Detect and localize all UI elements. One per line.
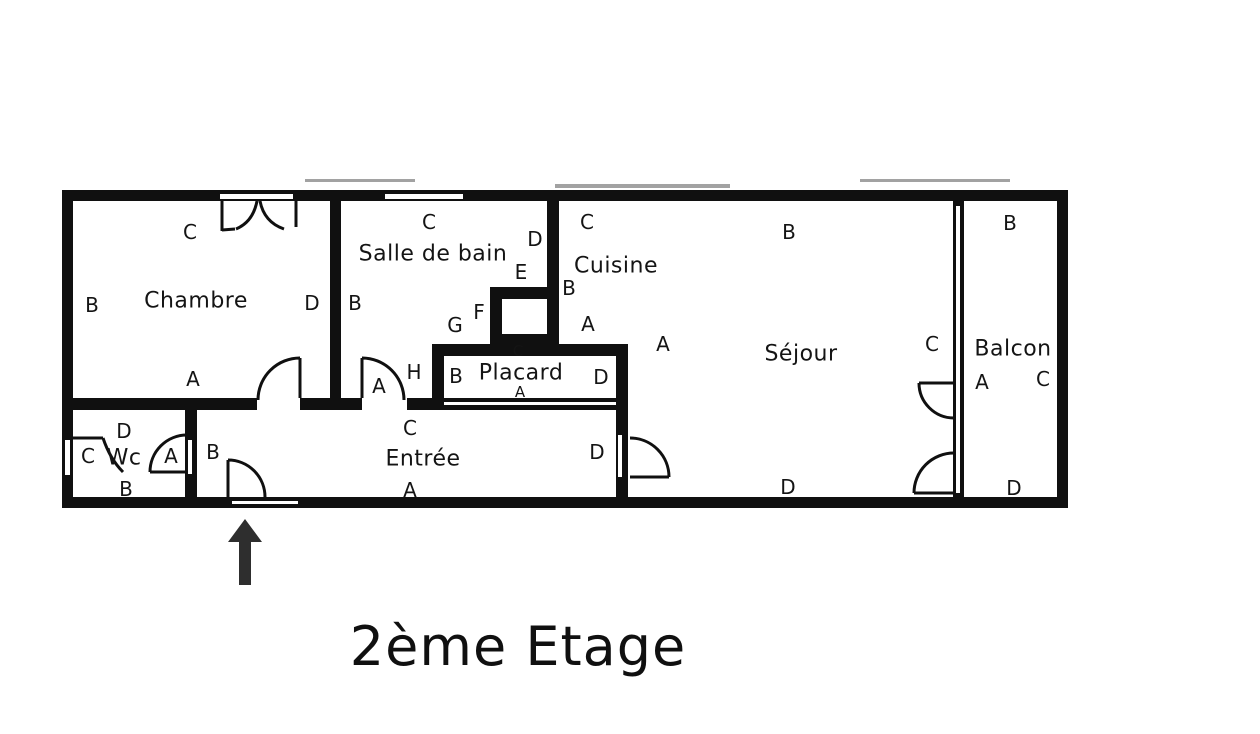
wall-label-wc-d: D bbox=[116, 419, 131, 443]
wall-label-sejour-b: B bbox=[782, 220, 796, 244]
wall-label-chambre-c: C bbox=[183, 220, 197, 244]
wall-label-entree-a: A bbox=[403, 478, 417, 502]
room-name-entree: Entrée bbox=[385, 447, 460, 472]
wall-label-placard-b: B bbox=[449, 364, 463, 388]
floor-title: 2ème Etage bbox=[338, 615, 698, 678]
room-name-placard: Placard bbox=[479, 361, 564, 386]
wall-label-balcon-c: C bbox=[1036, 367, 1050, 391]
wall-label-sejour-a: A bbox=[656, 332, 670, 356]
wall-label-sejour-c: C bbox=[925, 332, 939, 356]
wall-label-cuisine-b: B bbox=[562, 276, 576, 300]
wall-label-cuisine-a: A bbox=[581, 312, 595, 336]
wall-label-entree-d: D bbox=[589, 440, 604, 464]
wall-label-balcon-a: A bbox=[975, 370, 989, 394]
wall-label-placard-c: C bbox=[513, 342, 523, 360]
wall-label-placard-d: D bbox=[593, 365, 608, 389]
wall-label-salle-de-bain-h: H bbox=[406, 360, 421, 384]
wall-label-salle-de-bain-e: E bbox=[515, 260, 528, 284]
room-name-salle-de-bain: Salle de bain bbox=[359, 242, 508, 267]
room-name-cuisine: Cuisine bbox=[574, 254, 658, 279]
wall-label-salle-de-bain-d: D bbox=[527, 227, 542, 251]
room-name-wc: Wc bbox=[107, 446, 142, 471]
wall-label-wc-a: A bbox=[164, 444, 178, 468]
wall-label-salle-de-bain-a: A bbox=[372, 374, 386, 398]
wall-label-wc-b: B bbox=[119, 477, 133, 501]
wall-label-cuisine-c: C bbox=[580, 210, 594, 234]
room-name-sejour: Séjour bbox=[764, 342, 837, 367]
wall-label-placard-a: A bbox=[515, 383, 525, 401]
wall-label-entree-b: B bbox=[206, 440, 220, 464]
wall-label-balcon-d: D bbox=[1006, 476, 1021, 500]
room-name-balcon: Balcon bbox=[974, 337, 1051, 362]
wall-label-entree-c: C bbox=[403, 416, 417, 440]
wall-label-chambre-b: B bbox=[85, 293, 99, 317]
wall-label-chambre-a: A bbox=[186, 367, 200, 391]
wall-label-chambre-d: D bbox=[304, 291, 319, 315]
wall-label-salle-de-bain-b: B bbox=[348, 291, 362, 315]
wall-label-wc-c: C bbox=[81, 444, 95, 468]
wall-label-sejour-d: D bbox=[780, 475, 795, 499]
wall-label-salle-de-bain-c: C bbox=[422, 210, 436, 234]
wall-label-balcon-b: B bbox=[1003, 211, 1017, 235]
room-name-chambre: Chambre bbox=[144, 289, 248, 314]
floor-plan-page: ChambreCBDASalle de bainCBDEFGHACuisineC… bbox=[0, 0, 1260, 734]
wall-label-salle-de-bain-f: F bbox=[473, 300, 485, 324]
wall-label-salle-de-bain-g: G bbox=[447, 313, 463, 337]
